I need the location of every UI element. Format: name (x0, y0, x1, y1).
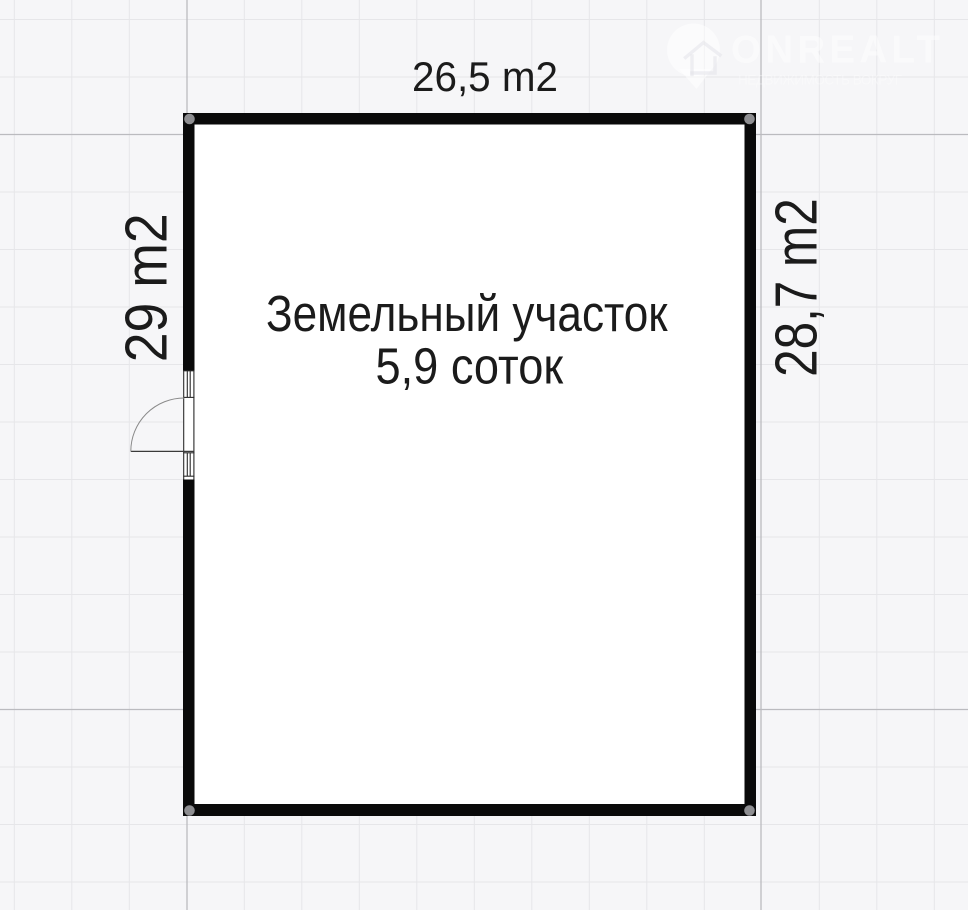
svg-text:28,7 m2: 28,7 m2 (763, 198, 829, 377)
svg-text:26,5 m2: 26,5 m2 (412, 53, 558, 100)
svg-text:Земельный участок: Земельный участок (266, 286, 669, 343)
svg-text:29 m2: 29 m2 (113, 213, 179, 362)
svg-text:5,9 соток: 5,9 соток (375, 338, 564, 395)
svg-text:НЕДВИЖИМОСТЬ ВОКРУГ: НЕДВИЖИМОСТЬ ВОКРУГ (738, 73, 903, 88)
